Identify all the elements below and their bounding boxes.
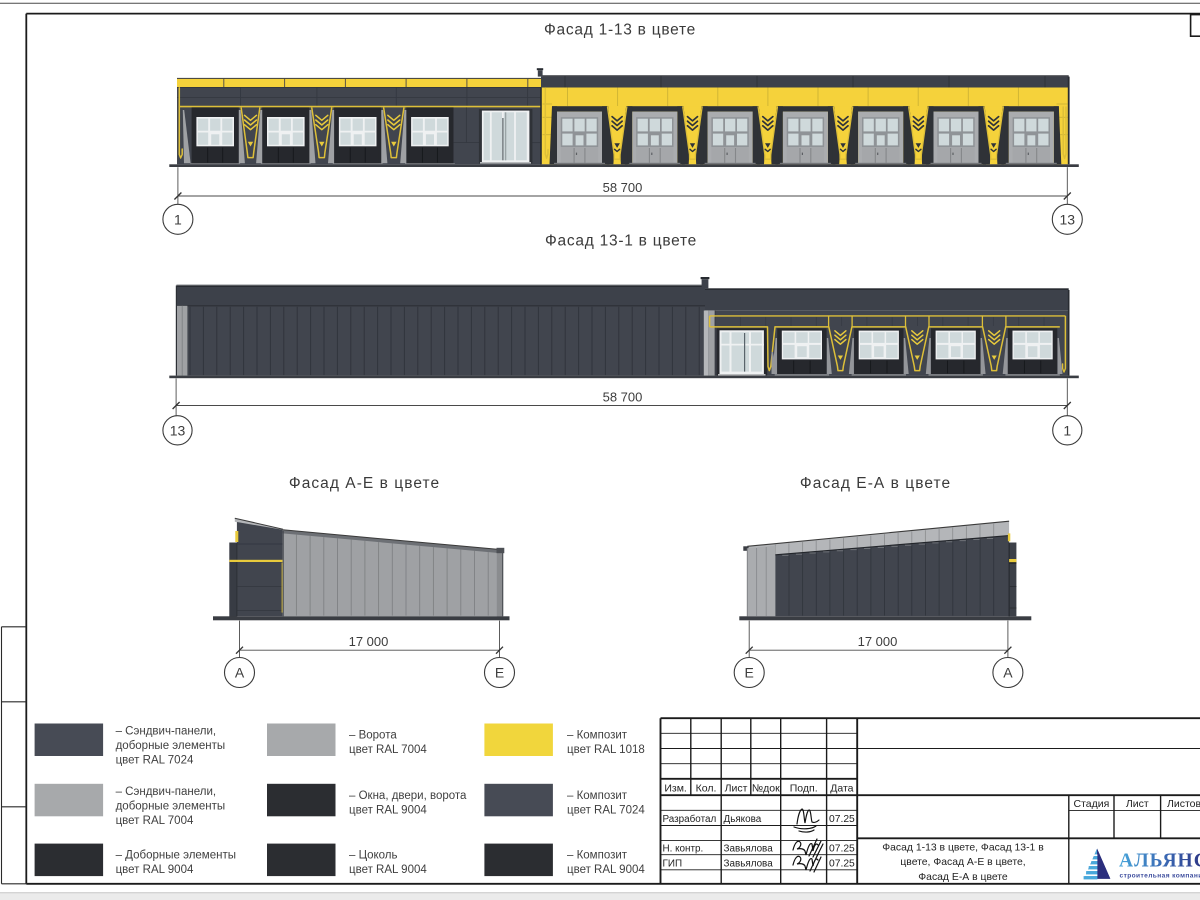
svg-text:цвет RAL 7024: цвет RAL 7024 — [116, 755, 194, 767]
svg-text:ГИП: ГИП — [663, 858, 683, 869]
svg-text:цвет RAL 9004: цвет RAL 9004 — [349, 864, 427, 876]
svg-text:цвет RAL 7004: цвет RAL 7004 — [116, 815, 194, 827]
svg-text:Разработал: Разработал — [663, 814, 717, 825]
svg-text:07.25: 07.25 — [829, 814, 855, 825]
svg-text:Е: Е — [495, 665, 504, 681]
svg-text:1: 1 — [1063, 422, 1071, 438]
svg-text:А: А — [1003, 665, 1013, 681]
svg-text:07.25: 07.25 — [829, 844, 855, 855]
svg-text:Стадия: Стадия — [1074, 798, 1110, 810]
svg-text:13: 13 — [170, 422, 186, 438]
svg-text:– Сэндвич-панели,: – Сэндвич-панели, — [116, 726, 217, 738]
svg-text:Подп.: Подп. — [790, 782, 818, 794]
svg-text:Фасад Е-А в цвете: Фасад Е-А в цвете — [918, 872, 1008, 883]
svg-text:Кол.: Кол. — [696, 782, 717, 794]
svg-text:Завьялова: Завьялова — [724, 844, 774, 855]
svg-text:– Доборные элементы: – Доборные элементы — [116, 850, 236, 862]
svg-text:Дата: Дата — [830, 782, 853, 794]
svg-text:доборные элементы: доборные элементы — [116, 800, 226, 812]
svg-text:доборные элементы: доборные элементы — [116, 740, 226, 752]
svg-text:цвет RAL 9004: цвет RAL 9004 — [116, 864, 194, 876]
svg-text:Лист: Лист — [725, 782, 748, 794]
svg-text:Е: Е — [745, 665, 754, 681]
svg-text:– Композит: – Композит — [567, 850, 628, 862]
svg-text:Дьякова: Дьякова — [724, 814, 762, 825]
svg-text:– Цоколь: – Цоколь — [349, 850, 398, 862]
svg-text:58 700: 58 700 — [603, 180, 643, 195]
svg-text:– Окна, двери, ворота: – Окна, двери, ворота — [349, 790, 467, 802]
svg-text:Лист: Лист — [1126, 798, 1149, 810]
svg-text:строительная компания: строительная компания — [1120, 873, 1200, 880]
svg-text:Фасад 13-1 в цвете: Фасад 13-1 в цвете — [545, 233, 697, 250]
svg-text:Фасад 1-13 в цвете, Фасад 13-1: Фасад 1-13 в цвете, Фасад 13-1 в — [882, 842, 1044, 853]
svg-text:цвет RAL 7004: цвет RAL 7004 — [349, 744, 427, 756]
svg-text:цвет RAL 7024: цвет RAL 7024 — [567, 804, 645, 816]
svg-text:цвет RAL 9004: цвет RAL 9004 — [567, 864, 645, 876]
svg-text:№док: №док — [752, 782, 780, 794]
svg-text:цвет RAL 9004: цвет RAL 9004 — [349, 804, 427, 816]
svg-text:цвете, Фасад А-Е в цвете,: цвете, Фасад А-Е в цвете, — [900, 857, 1025, 868]
svg-text:– Композит: – Композит — [567, 790, 628, 802]
svg-text:Фасад А-Е в цвете: Фасад А-Е в цвете — [289, 475, 440, 492]
svg-text:17 000: 17 000 — [858, 634, 898, 649]
svg-text:АЛЬЯНС: АЛЬЯНС — [1119, 851, 1200, 872]
svg-text:Завьялова: Завьялова — [724, 858, 774, 869]
svg-text:– Композит: – Композит — [567, 730, 628, 742]
svg-text:07.25: 07.25 — [829, 858, 855, 869]
svg-text:– Ворота: – Ворота — [349, 730, 397, 742]
svg-text:Фасад 1-13 в цвете: Фасад 1-13 в цвете — [544, 22, 696, 39]
svg-text:58 700: 58 700 — [603, 390, 643, 405]
svg-text:1: 1 — [174, 211, 182, 227]
svg-text:– Сэндвич-панели,: – Сэндвич-панели, — [116, 786, 217, 798]
svg-text:А: А — [235, 665, 245, 681]
svg-text:Листов: Листов — [1167, 798, 1200, 810]
svg-text:Фасад Е-А в цвете: Фасад Е-А в цвете — [800, 475, 951, 492]
svg-text:13: 13 — [1060, 211, 1076, 227]
svg-text:Н. контр.: Н. контр. — [663, 844, 704, 855]
svg-text:17 000: 17 000 — [349, 634, 389, 649]
svg-text:Изм.: Изм. — [664, 782, 687, 794]
svg-text:цвет RAL 1018: цвет RAL 1018 — [567, 744, 645, 756]
